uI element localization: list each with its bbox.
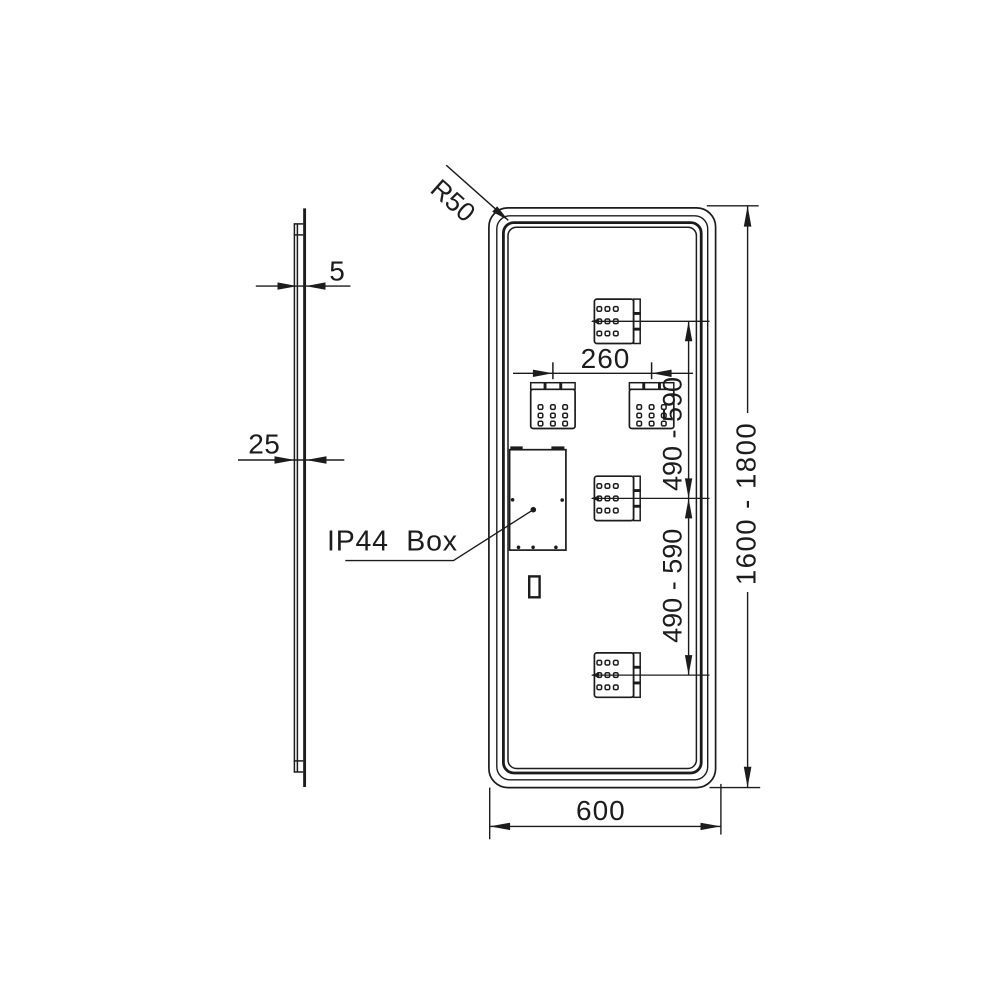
svg-text:490 - 590: 490 - 590	[657, 377, 687, 491]
svg-text:5: 5	[329, 255, 345, 286]
svg-text:25: 25	[248, 428, 280, 459]
svg-text:490 - 590: 490 - 590	[657, 529, 687, 643]
svg-text:IP44 Box: IP44 Box	[327, 526, 458, 558]
svg-text:260: 260	[581, 343, 631, 374]
svg-text:1600 - 1800: 1600 - 1800	[731, 422, 762, 585]
svg-text:600: 600	[576, 795, 626, 826]
